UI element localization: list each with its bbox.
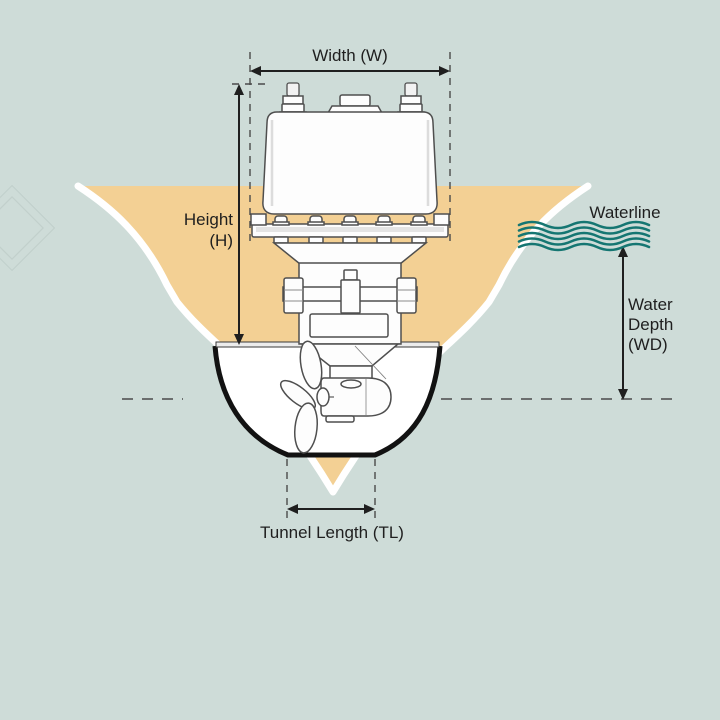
watermark-ghost-drawing — [0, 164, 54, 271]
tapered-neck — [274, 243, 426, 264]
water-depth-label-line1: Water — [628, 295, 673, 315]
name-plate — [310, 314, 388, 337]
water-depth-label-line2: Depth — [628, 315, 673, 335]
motor-top-stud-right — [398, 83, 424, 116]
motor-body — [263, 112, 437, 214]
water-depth-label: Water Depth (WD) — [628, 295, 673, 355]
height-label-line1: Height — [103, 209, 233, 230]
width-label: Width (W) — [250, 45, 450, 66]
thruster-dimension-diagram: Width (W) Height (H) Waterline Water Dep… — [0, 0, 720, 720]
motor-top-cap — [328, 95, 382, 113]
water-depth-label-line3: (WD) — [628, 335, 673, 355]
height-label: Height (H) — [103, 209, 233, 251]
motor-top-stud-left — [280, 83, 306, 116]
height-label-line2: (H) — [103, 230, 233, 251]
tunnel-length-label: Tunnel Length (TL) — [232, 522, 432, 543]
tunnel-length-arrow — [287, 504, 375, 514]
diagram-canvas — [0, 0, 720, 720]
water-depth-arrow — [618, 246, 628, 400]
motor-flange — [251, 214, 449, 243]
waterline-label: Waterline — [559, 202, 691, 223]
width-arrow — [250, 66, 450, 76]
propeller-hub — [317, 388, 329, 406]
